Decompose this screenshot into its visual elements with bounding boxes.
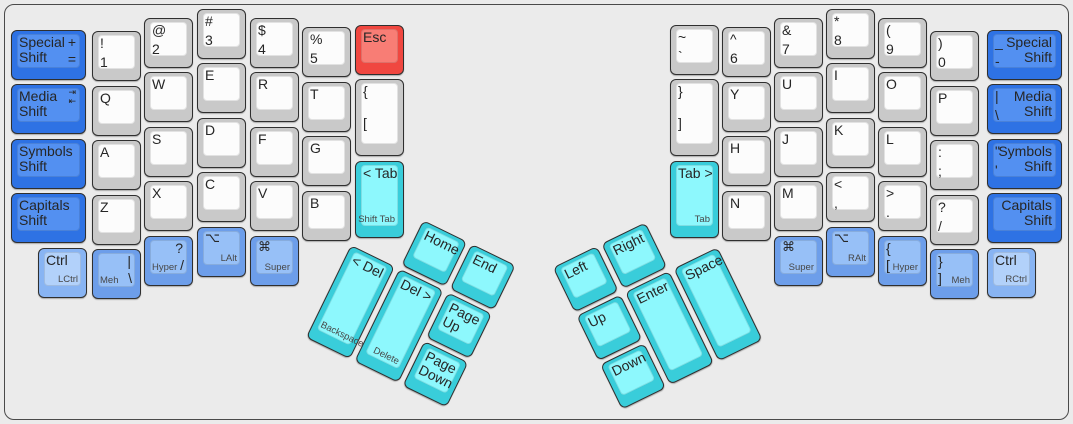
capitals-shift-right[interactable]: Capitals Shift bbox=[987, 193, 1062, 243]
key-down-top bbox=[607, 349, 655, 396]
key-9[interactable]: (9 bbox=[878, 18, 927, 68]
key-hyper-left-top bbox=[150, 240, 187, 274]
key-x[interactable]: X bbox=[144, 181, 193, 231]
key-lctrl[interactable]: CtrlLCtrl bbox=[38, 248, 87, 298]
key-j-top bbox=[780, 131, 817, 165]
symbols-shift-right-top bbox=[993, 143, 1056, 177]
key-2-top bbox=[150, 22, 187, 56]
key-6[interactable]: ^6 bbox=[722, 27, 771, 77]
special-shift-right-top bbox=[993, 34, 1056, 68]
key-rbrace[interactable]: }] bbox=[670, 79, 719, 156]
key-l[interactable]: L bbox=[878, 127, 927, 177]
key-l-top bbox=[884, 131, 921, 165]
key-n[interactable]: N bbox=[722, 191, 771, 241]
key-left-top bbox=[560, 252, 608, 299]
key-e[interactable]: E bbox=[197, 63, 246, 113]
key-tab-right[interactable]: Tab >Tab bbox=[670, 161, 719, 238]
key-lalt[interactable]: ⌥LAlt bbox=[197, 227, 246, 277]
key-super-right[interactable]: ⌘Super bbox=[774, 236, 823, 286]
key-right-top bbox=[608, 229, 656, 276]
key-p-top bbox=[936, 90, 973, 124]
key-q-top bbox=[98, 90, 135, 124]
key-g-top bbox=[308, 140, 345, 174]
key-j[interactable]: J bbox=[774, 127, 823, 177]
key-tab-left-top bbox=[361, 165, 398, 226]
key-x-top bbox=[150, 185, 187, 219]
special-shift-left[interactable]: Special Shift+= bbox=[11, 30, 86, 80]
key-lalt-top bbox=[203, 231, 240, 265]
key-v[interactable]: V bbox=[250, 181, 299, 231]
special-shift-left-top bbox=[17, 34, 80, 68]
key-2[interactable]: @2 bbox=[144, 18, 193, 68]
key-rctrl-top bbox=[993, 252, 1030, 286]
keyboard-layout-canvas: HomeEnd< DelBackspaceDel >DeletePage UpP… bbox=[0, 0, 1073, 424]
key-4[interactable]: $4 bbox=[250, 18, 299, 68]
key-tab-right-top bbox=[676, 165, 713, 226]
key-s[interactable]: S bbox=[144, 127, 193, 177]
key-6-top bbox=[728, 31, 765, 65]
key-z-top bbox=[98, 199, 135, 233]
key-tilde[interactable]: ~` bbox=[670, 25, 719, 75]
key-comma-top bbox=[832, 176, 869, 210]
key-t[interactable]: T bbox=[302, 82, 351, 132]
key-slash-top bbox=[936, 199, 973, 233]
key-y[interactable]: Y bbox=[722, 82, 771, 132]
symbols-shift-right[interactable]: Symbols Shift"' bbox=[987, 139, 1062, 189]
key-w-top bbox=[150, 76, 187, 110]
key-ralt-top bbox=[832, 231, 869, 265]
key-lbracket-top bbox=[361, 83, 398, 144]
key-h[interactable]: H bbox=[722, 136, 771, 186]
key-p[interactable]: P bbox=[930, 86, 979, 136]
media-shift-right[interactable]: Media Shift|\ bbox=[987, 84, 1062, 134]
key-i-top bbox=[832, 67, 869, 101]
key-u-top bbox=[780, 76, 817, 110]
capitals-shift-left-top bbox=[17, 197, 80, 231]
key-4-top bbox=[256, 22, 293, 56]
key-lctrl-top bbox=[44, 252, 81, 286]
key-meh-right-top bbox=[936, 253, 973, 287]
key-8[interactable]: *8 bbox=[826, 9, 875, 59]
key-k-top bbox=[832, 122, 869, 156]
key-rctrl[interactable]: CtrlRCtrl bbox=[987, 248, 1036, 298]
key-9-top bbox=[884, 22, 921, 56]
key-hyper-left[interactable]: ?Hyper/ bbox=[144, 236, 193, 286]
key-semicolon[interactable]: :; bbox=[930, 140, 979, 190]
key-0-top bbox=[936, 35, 973, 69]
media-shift-left[interactable]: Media Shift⇥ ⇤ bbox=[11, 84, 86, 134]
key-t-top bbox=[308, 86, 345, 120]
key-period-top bbox=[884, 185, 921, 219]
key-n-top bbox=[728, 195, 765, 229]
key-k[interactable]: K bbox=[826, 118, 875, 168]
key-esc[interactable]: Esc bbox=[355, 25, 404, 75]
key-o-top bbox=[884, 76, 921, 110]
key-o[interactable]: O bbox=[878, 72, 927, 122]
key-hyper-right[interactable]: {[Hyper bbox=[878, 236, 927, 286]
key-3-top bbox=[203, 13, 240, 47]
key-1-top bbox=[98, 35, 135, 69]
key-esc-top bbox=[361, 29, 398, 63]
key-7-top bbox=[780, 22, 817, 56]
key-semicolon-top bbox=[936, 144, 973, 178]
key-y-top bbox=[728, 86, 765, 120]
key-a-top bbox=[98, 144, 135, 178]
key-super-left[interactable]: ⌘Super bbox=[250, 236, 299, 286]
key-b-top bbox=[308, 195, 345, 229]
key-ralt[interactable]: ⌥RAlt bbox=[826, 227, 875, 277]
key-d[interactable]: D bbox=[197, 118, 246, 168]
key-meh-left-top bbox=[98, 253, 135, 287]
key-5-top bbox=[308, 31, 345, 65]
key-tilde-top bbox=[676, 29, 713, 63]
key-comma[interactable]: <, bbox=[826, 172, 875, 222]
key-0[interactable]: )0 bbox=[930, 31, 979, 81]
capitals-shift-left[interactable]: Capitals Shift bbox=[11, 193, 86, 243]
key-e-top bbox=[203, 67, 240, 101]
key-u[interactable]: U bbox=[774, 72, 823, 122]
key-z[interactable]: Z bbox=[92, 195, 141, 245]
key-lbracket[interactable]: {[ bbox=[355, 79, 404, 156]
key-h-top bbox=[728, 140, 765, 174]
key-m[interactable]: M bbox=[774, 181, 823, 231]
key-r[interactable]: R bbox=[250, 72, 299, 122]
key-up-top bbox=[584, 301, 632, 348]
key-f-top bbox=[256, 131, 293, 165]
key-d-top bbox=[203, 122, 240, 156]
key-m-top bbox=[780, 185, 817, 219]
key-r-top bbox=[256, 76, 293, 110]
key-7[interactable]: &7 bbox=[774, 18, 823, 68]
special-shift-right[interactable]: Special Shift_- bbox=[987, 30, 1062, 80]
key-3[interactable]: #3 bbox=[197, 9, 246, 59]
key-a[interactable]: A bbox=[92, 140, 141, 190]
capitals-shift-right-top bbox=[993, 197, 1056, 231]
key-w[interactable]: W bbox=[144, 72, 193, 122]
key-meh-right[interactable]: }]Meh bbox=[930, 249, 979, 299]
symbols-shift-left[interactable]: Symbols Shift bbox=[11, 139, 86, 189]
key-s-top bbox=[150, 131, 187, 165]
key-q[interactable]: Q bbox=[92, 86, 141, 136]
media-shift-left-top bbox=[17, 88, 80, 122]
key-c-top bbox=[203, 176, 240, 210]
key-hyper-right-top bbox=[884, 240, 921, 274]
key-f[interactable]: F bbox=[250, 127, 299, 177]
key-g[interactable]: G bbox=[302, 136, 351, 186]
key-slash[interactable]: ?/ bbox=[930, 195, 979, 245]
key-meh-left[interactable]: |Meh\ bbox=[92, 249, 141, 299]
key-super-right-top bbox=[780, 240, 817, 274]
key-c[interactable]: C bbox=[197, 172, 246, 222]
key-rbrace-top bbox=[676, 83, 713, 144]
key-v-top bbox=[256, 185, 293, 219]
key-1[interactable]: !1 bbox=[92, 31, 141, 81]
key-b[interactable]: B bbox=[302, 191, 351, 241]
media-shift-right-top bbox=[993, 88, 1056, 122]
key-period[interactable]: >. bbox=[878, 181, 927, 231]
key-8-top bbox=[832, 13, 869, 47]
key-5[interactable]: %5 bbox=[302, 27, 351, 77]
key-i[interactable]: I bbox=[826, 63, 875, 113]
symbols-shift-left-top bbox=[17, 143, 80, 177]
key-tab-left[interactable]: < TabShift Tab bbox=[355, 161, 404, 238]
key-super-left-top bbox=[256, 240, 293, 274]
